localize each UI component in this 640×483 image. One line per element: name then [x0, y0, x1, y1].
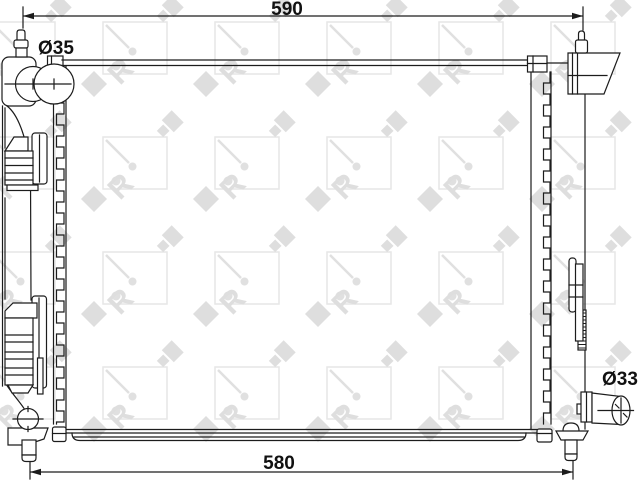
watermark-tile	[305, 225, 408, 327]
clip-right	[569, 258, 586, 350]
watermark-tile	[193, 225, 296, 327]
radiator-core	[60, 60, 537, 441]
watermark-tile	[193, 340, 296, 442]
dimension-label-bottom-width: 580	[239, 454, 319, 473]
arrowhead-left-icon	[23, 13, 34, 19]
watermark-tile	[529, 110, 632, 212]
dimension-label-top-width: 590	[247, 0, 327, 19]
watermark-tile	[305, 340, 408, 442]
watermark-tile	[81, 0, 184, 97]
watermark-tile	[417, 225, 520, 327]
watermark-tile	[81, 340, 184, 442]
upper-bracket-left	[5, 133, 47, 191]
watermark-tile	[81, 225, 184, 327]
watermark-tile	[417, 110, 520, 212]
lower-bracket-left	[5, 296, 47, 394]
watermark-tile	[193, 110, 296, 212]
watermark-tile	[417, 340, 520, 442]
drain-plug-right	[537, 423, 588, 461]
mounting-bracket-top-right	[568, 31, 620, 94]
outlet-pipe	[577, 392, 634, 425]
locating-pin	[579, 31, 585, 40]
radiator-diagram: R	[0, 0, 640, 483]
arrowhead-right-icon	[562, 469, 573, 475]
watermark-tile	[81, 110, 184, 212]
dimension-label-inlet-diameter: Ø35	[20, 39, 92, 58]
dimension-label-outlet-diameter: Ø33	[584, 370, 640, 389]
radiator-line-drawing: R	[0, 0, 640, 483]
arrowhead-right-icon	[572, 13, 583, 19]
arrowhead-left-icon	[30, 469, 41, 475]
watermark-tile	[305, 110, 408, 212]
watermark-tile	[417, 0, 520, 97]
